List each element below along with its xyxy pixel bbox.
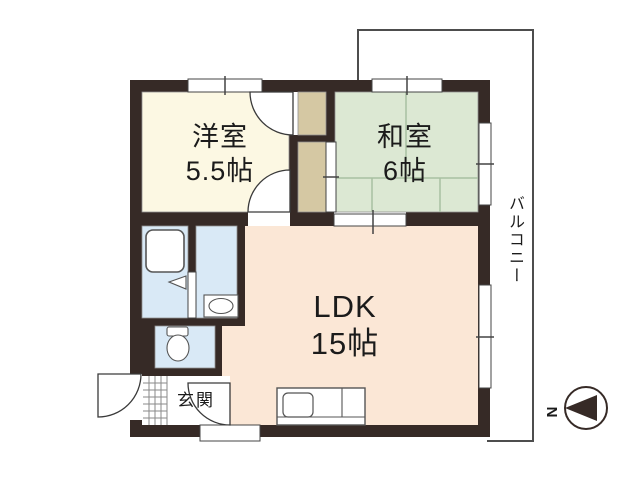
door-bathroom — [188, 272, 196, 318]
japanese-room-size: 6帖 — [335, 154, 475, 188]
wall-closet-divider — [298, 135, 335, 142]
washbasin-bowl — [209, 299, 233, 314]
floor-plan: N 洋室 5.5帖 和室 6帖 LDK 15帖 玄関 バルコニー — [0, 0, 640, 480]
western-room-size: 5.5帖 — [142, 154, 298, 188]
entrance-step — [200, 425, 260, 441]
wall-toilet-south — [142, 368, 230, 376]
wall-toilet-east — [215, 318, 222, 376]
ldk-name: LDK — [245, 288, 445, 325]
closet-top — [298, 92, 326, 135]
toilet-bowl — [167, 335, 189, 361]
balcony-label: バルコニー — [501, 170, 523, 310]
wall-bath-washroom — [188, 226, 196, 272]
compass: N — [543, 387, 607, 429]
ldk-label: LDK 15帖 — [245, 288, 445, 362]
japanese-room-label: 和室 6帖 — [335, 120, 475, 188]
japanese-room-name: 和室 — [335, 120, 475, 154]
ldk-size: 15帖 — [245, 325, 445, 362]
western-room-name: 洋室 — [142, 120, 298, 154]
wall-bottom — [130, 425, 490, 437]
kitchen-sink — [283, 393, 313, 417]
floor-plan-drawing: N — [0, 0, 640, 480]
compass-north-label: N — [543, 407, 560, 418]
wall-japanese-south — [406, 212, 478, 226]
wall-western-south-right — [290, 212, 334, 226]
sliding-door-japanese-ldk — [334, 214, 406, 226]
western-room-label: 洋室 5.5帖 — [142, 120, 298, 188]
wall-sanitary-south — [142, 318, 245, 326]
entrance-label: 玄関 — [150, 391, 242, 411]
wall-closet-east-top — [326, 92, 335, 135]
wall-western-south-left — [142, 212, 248, 226]
bathtub — [146, 230, 184, 272]
wall-left-upper — [130, 80, 142, 374]
wall-toilet-west — [142, 318, 155, 376]
closet-bottom — [298, 142, 326, 212]
entrance-name: 玄関 — [150, 391, 242, 411]
